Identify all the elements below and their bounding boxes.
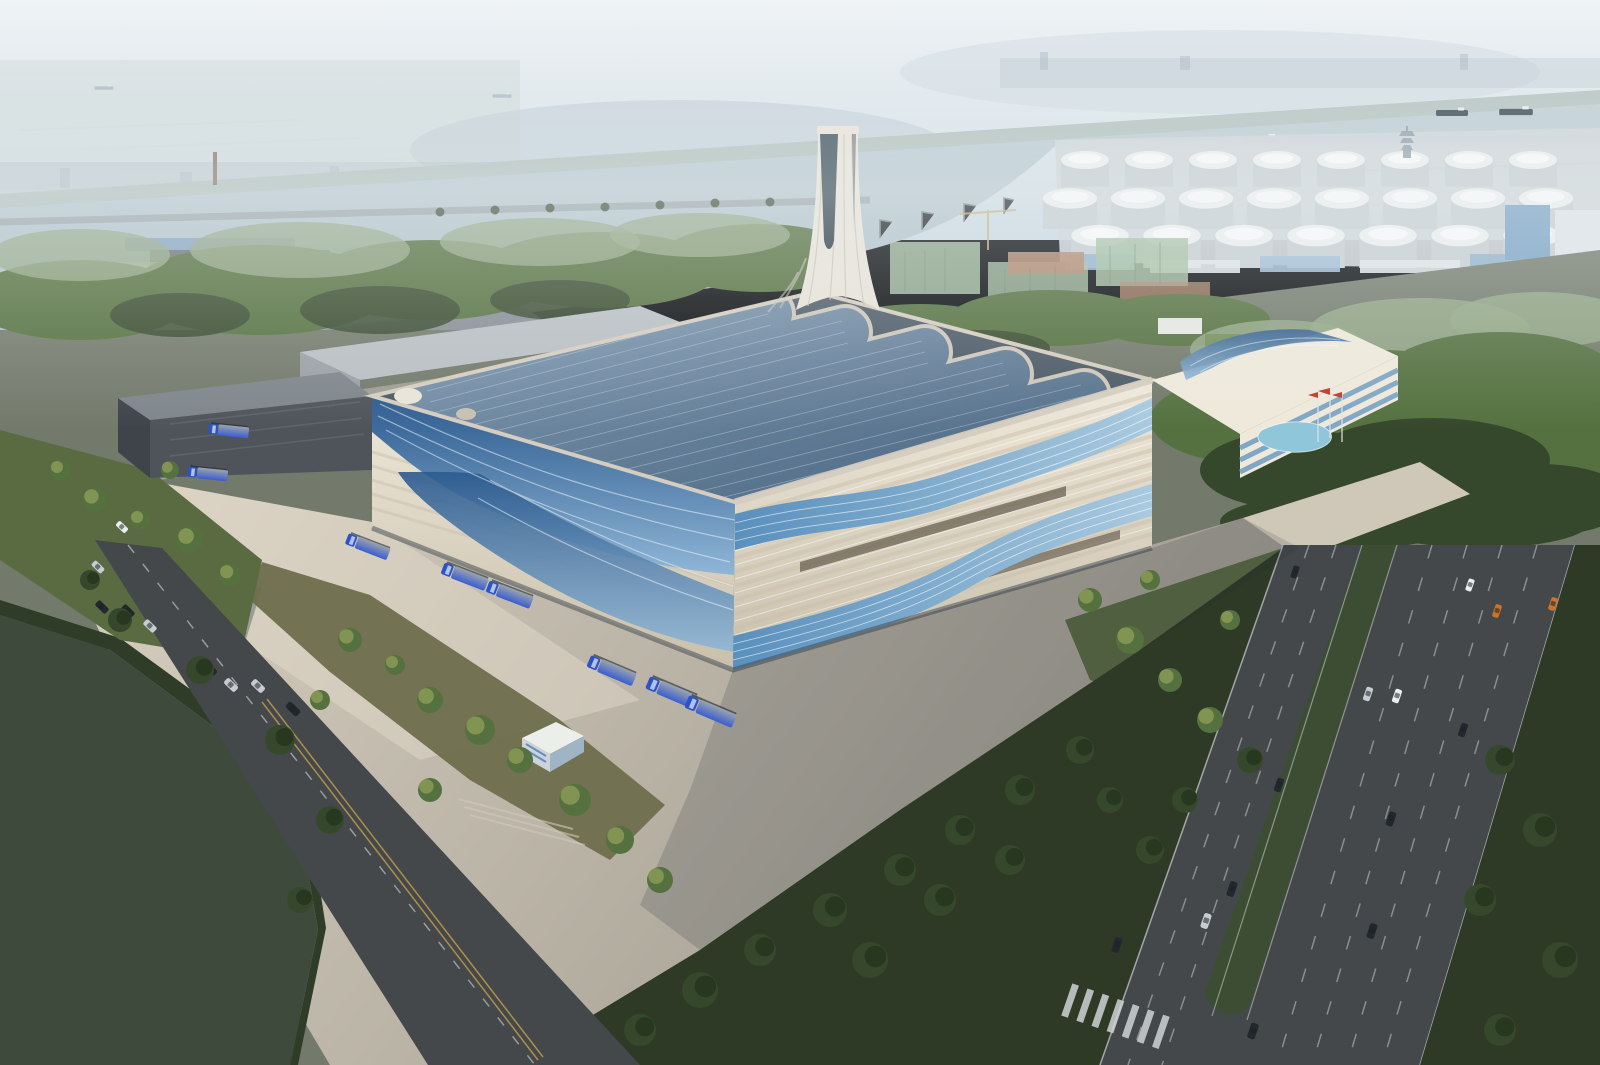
tree: [1197, 707, 1223, 733]
tree: [507, 747, 533, 773]
tree: [83, 488, 107, 512]
scene-canvas: 东莞丰业: [0, 0, 1600, 1065]
tree: [219, 564, 241, 586]
tree: [1237, 747, 1263, 773]
tree: [606, 826, 634, 854]
tree: [1542, 942, 1578, 978]
tree: [884, 854, 916, 886]
tree: [1523, 813, 1557, 847]
tree: [1005, 775, 1035, 805]
tree: [265, 725, 295, 755]
tree: [186, 656, 214, 684]
tree: [924, 884, 956, 916]
tree: [108, 608, 132, 632]
tree: [744, 934, 776, 966]
tree: [995, 845, 1025, 875]
tree: [945, 815, 975, 845]
tree: [682, 972, 718, 1008]
tree: [1172, 787, 1198, 813]
tree: [338, 628, 362, 652]
tree: [465, 715, 495, 745]
tree: [813, 893, 847, 927]
tree: [647, 867, 673, 893]
tree: [852, 942, 888, 978]
tree: [559, 784, 591, 816]
tree: [1220, 610, 1240, 630]
tree: [385, 655, 405, 675]
tree: [1116, 626, 1144, 654]
aerial-render: 东莞丰业: [0, 0, 1600, 1065]
tree: [310, 690, 330, 710]
tree: [161, 461, 179, 479]
tree: [417, 687, 443, 713]
tree: [177, 527, 203, 553]
tree: [1485, 745, 1515, 775]
atmospheric-haze: [0, 0, 1600, 430]
tree: [1484, 1014, 1516, 1046]
tree: [1078, 588, 1102, 612]
tree: [1158, 668, 1182, 692]
tree: [1136, 836, 1164, 864]
tree: [316, 806, 344, 834]
tree: [80, 570, 100, 590]
tree: [1140, 570, 1160, 590]
tree: [287, 887, 313, 913]
tree: [624, 1014, 656, 1046]
tree: [50, 460, 70, 480]
tree: [418, 778, 442, 802]
tree: [1097, 787, 1123, 813]
tree: [1464, 884, 1496, 916]
tree: [130, 510, 150, 530]
tree: [1066, 736, 1094, 764]
